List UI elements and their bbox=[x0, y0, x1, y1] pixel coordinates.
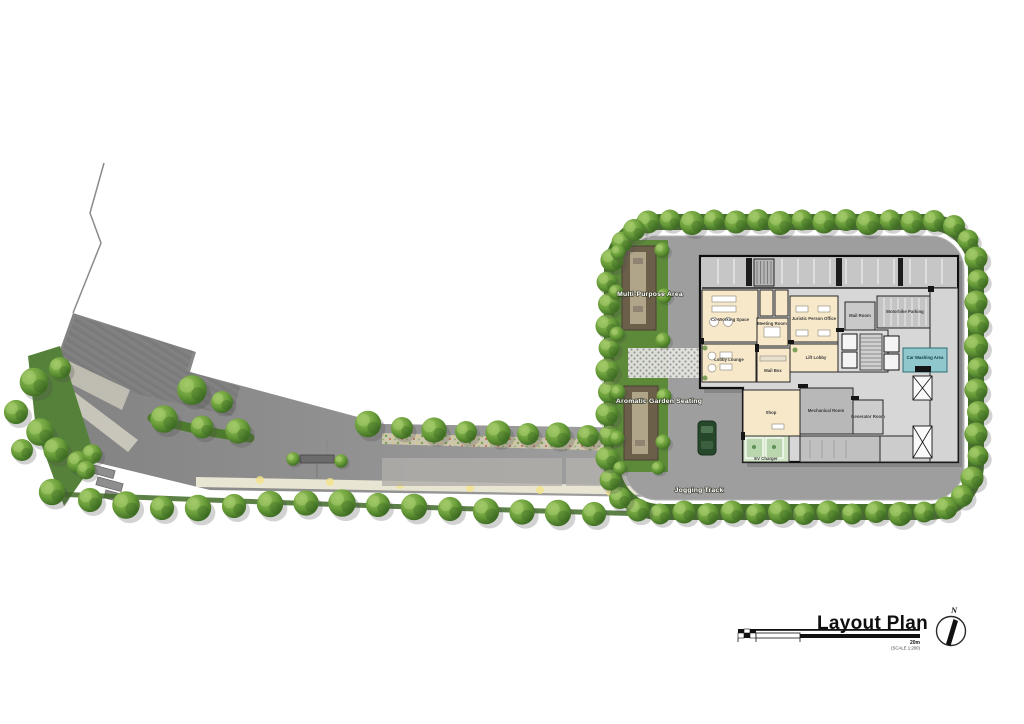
phone-booth-1 bbox=[760, 290, 773, 316]
ramp-area-1 bbox=[800, 436, 880, 462]
north-compass: N bbox=[937, 605, 966, 646]
title-block: Layout Plan 20m (SCALE 1:200) N bbox=[738, 605, 966, 651]
paving-panel-1 bbox=[382, 458, 562, 486]
lobby-lounge-room bbox=[702, 344, 756, 382]
ev-charger-label: EV Charger bbox=[754, 456, 778, 461]
entrance-crosswalk bbox=[628, 348, 704, 378]
mail-box-label: Mail Box bbox=[764, 368, 782, 373]
motorbike-parking-label: Motorbike Parking bbox=[886, 309, 924, 314]
mail-room-label: Mail Room bbox=[849, 313, 871, 318]
lift-lobby-label: Lift Lobby bbox=[806, 355, 827, 360]
multi-purpose-courtyard bbox=[622, 246, 656, 330]
generator-room-label: Generator Room bbox=[851, 414, 885, 419]
site-boundary-line bbox=[73, 163, 104, 313]
car-washing-area-room bbox=[903, 348, 947, 372]
stair-core bbox=[860, 334, 882, 370]
phone-booth-2 bbox=[775, 290, 788, 316]
multi-purpose-area-label: Multi-Purpose Area bbox=[617, 291, 683, 298]
co-working-space-label: Co-Working Space bbox=[711, 317, 750, 322]
layout-plan-drawing: Co-Working Space Meeting Room Juristic P… bbox=[0, 0, 1024, 724]
aromatic-garden-seating-label: Aromatic Garden Seating bbox=[616, 398, 702, 405]
parked-car bbox=[698, 421, 716, 455]
lobby-lounge-label: Lobby Lounge bbox=[714, 357, 744, 362]
jogging-track-label: Jogging Track bbox=[675, 487, 724, 494]
right-service-column bbox=[930, 288, 958, 462]
north-label: N bbox=[950, 605, 958, 615]
mail-box-room bbox=[757, 348, 790, 382]
layout-plan-page: Co-Working Space Meeting Room Juristic P… bbox=[0, 0, 1024, 724]
meeting-room-label: Meeting Room bbox=[757, 321, 787, 326]
scale-note: (SCALE 1:200) bbox=[891, 646, 920, 651]
mechanical-room-label: Mechanical Room bbox=[808, 408, 845, 413]
juristic-person-office-label: Juristic Person Office bbox=[792, 316, 837, 321]
page-title: Layout Plan bbox=[817, 613, 928, 634]
car-washing-area-label: Car Washing Area bbox=[907, 355, 944, 360]
shop-label: Shop bbox=[766, 410, 777, 415]
parking-strip bbox=[702, 258, 956, 288]
